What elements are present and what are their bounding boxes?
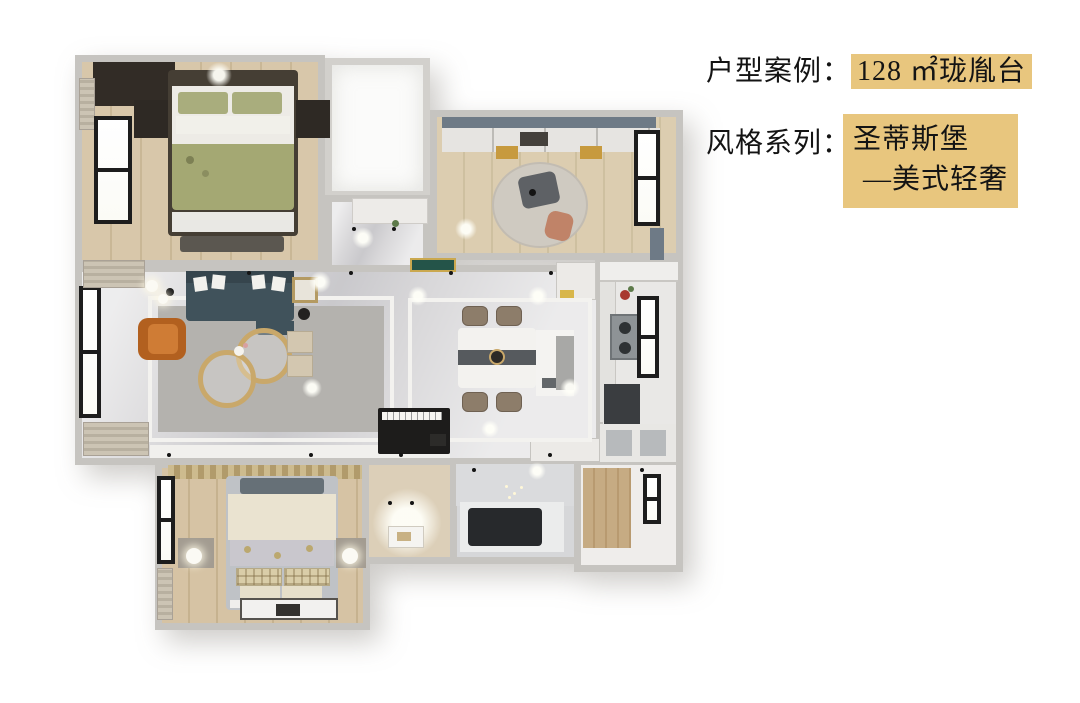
sofa-pillow bbox=[271, 276, 286, 292]
piano-keys bbox=[382, 412, 442, 420]
kitchen-cabinets bbox=[600, 262, 678, 282]
spotlight bbox=[392, 227, 396, 231]
floorplan-poster: 户型案例：128 ㎡珑胤台 风格系列： 圣蒂斯堡 —美式轻奢 bbox=[0, 0, 1080, 703]
bed-foot bbox=[172, 212, 294, 232]
pillow bbox=[178, 92, 228, 114]
curtain bbox=[650, 228, 664, 260]
case-row: 户型案例：128 ㎡珑胤台 bbox=[706, 49, 1032, 89]
ceiling-light bbox=[528, 286, 548, 306]
wood-panel-wall bbox=[583, 468, 631, 548]
vase bbox=[234, 346, 244, 356]
spotlight bbox=[247, 271, 251, 275]
cabinet bbox=[157, 568, 173, 620]
burner bbox=[619, 322, 631, 334]
window bbox=[79, 286, 101, 418]
sphere-lamp bbox=[158, 294, 168, 304]
decor-branch bbox=[186, 156, 194, 164]
ceiling-light bbox=[206, 62, 232, 88]
dining-chair bbox=[496, 306, 522, 326]
sofa-pillow bbox=[211, 274, 225, 289]
cabinet-door bbox=[640, 430, 666, 456]
sparkle bbox=[513, 492, 516, 495]
style-label: 风格系列： bbox=[706, 121, 851, 161]
bed-panel bbox=[230, 540, 334, 566]
spotlight bbox=[167, 453, 171, 457]
ceiling-light bbox=[309, 271, 331, 293]
dining-chair bbox=[462, 392, 488, 412]
dining-table bbox=[458, 328, 536, 388]
plant bbox=[392, 220, 399, 227]
side-table bbox=[298, 308, 310, 320]
upright-piano bbox=[378, 408, 450, 454]
sphere-lamp bbox=[146, 280, 158, 292]
sparkle bbox=[505, 485, 508, 488]
spotlight bbox=[388, 501, 392, 505]
spotlight bbox=[548, 453, 552, 457]
cream-duvet bbox=[228, 494, 336, 540]
style-series-subtitle: —美式轻奢 bbox=[853, 160, 1008, 200]
spotlight bbox=[410, 501, 414, 505]
plaid-pillow bbox=[236, 568, 282, 586]
sofa-pillow bbox=[193, 276, 208, 292]
low-cabinet bbox=[83, 422, 149, 456]
curtain bbox=[442, 117, 656, 128]
green-blanket bbox=[172, 144, 294, 210]
ceiling-light bbox=[302, 378, 322, 398]
master-bed bbox=[168, 70, 298, 236]
spotlight bbox=[449, 271, 453, 275]
cooktop bbox=[610, 314, 640, 360]
leather-armchair bbox=[138, 318, 186, 360]
rug-pattern bbox=[276, 604, 300, 616]
table-lamp bbox=[342, 548, 358, 564]
wall-unit bbox=[520, 132, 548, 146]
console-artwork bbox=[410, 258, 456, 272]
window bbox=[637, 296, 659, 378]
decor-dot bbox=[274, 552, 281, 559]
window bbox=[643, 474, 661, 524]
entry-cabinet bbox=[352, 198, 428, 224]
spotlight bbox=[349, 271, 353, 275]
spotlight bbox=[399, 453, 403, 457]
shelf-cabinet bbox=[79, 78, 95, 130]
bed-bench bbox=[240, 478, 324, 494]
lower-cabinets bbox=[600, 424, 676, 462]
cabinet-door bbox=[606, 430, 632, 456]
bathtub bbox=[468, 508, 542, 546]
spotlight bbox=[472, 468, 476, 472]
ottoman bbox=[287, 331, 313, 353]
dining-chair bbox=[496, 392, 522, 412]
centerpiece bbox=[489, 349, 505, 365]
style-value-highlight: 圣蒂斯堡 —美式轻奢 bbox=[843, 114, 1018, 208]
window bbox=[157, 476, 175, 564]
case-value-highlight: 128 ㎡珑胤台 bbox=[851, 54, 1032, 89]
gold-detail bbox=[560, 290, 574, 298]
gold-storage-box bbox=[496, 146, 518, 159]
decor-dot bbox=[244, 546, 251, 553]
apartment-floorplan-render bbox=[0, 0, 1080, 703]
wardrobe-row bbox=[442, 128, 660, 152]
guest-bed bbox=[226, 476, 338, 610]
spotlight bbox=[640, 468, 644, 472]
flowers bbox=[243, 343, 248, 348]
spotlight bbox=[352, 227, 356, 231]
nightstand bbox=[296, 100, 330, 138]
sofa bbox=[186, 271, 294, 321]
ottoman bbox=[287, 355, 313, 377]
plaid-pillow bbox=[284, 568, 330, 586]
bedside-rug bbox=[240, 598, 338, 620]
dining-chair bbox=[462, 306, 488, 326]
case-label: 户型案例： bbox=[706, 56, 851, 87]
lace-runner bbox=[176, 116, 290, 134]
coffee-table-ring bbox=[198, 350, 256, 408]
floor-lamp bbox=[166, 288, 174, 296]
ceiling-light bbox=[408, 286, 428, 306]
spotlight bbox=[549, 271, 553, 275]
ceiling-light bbox=[481, 420, 499, 438]
window bbox=[94, 116, 132, 224]
pillow bbox=[232, 92, 282, 114]
pendant-lamp bbox=[529, 189, 536, 196]
sparkle bbox=[520, 486, 523, 489]
burner bbox=[619, 342, 631, 354]
ceiling-light bbox=[455, 218, 477, 240]
bed-bench bbox=[180, 236, 284, 252]
refrigerator bbox=[604, 384, 640, 424]
decor-branch bbox=[202, 170, 209, 177]
ceiling-light bbox=[560, 378, 580, 398]
nightstand bbox=[134, 100, 168, 138]
window bbox=[634, 130, 660, 226]
ceiling-light bbox=[528, 462, 546, 480]
book bbox=[397, 532, 411, 541]
sofa-pillow bbox=[251, 274, 265, 289]
gold-storage-box bbox=[580, 146, 602, 159]
cabinet bbox=[83, 260, 145, 288]
style-series-name: 圣蒂斯堡 bbox=[853, 120, 1008, 160]
low-table bbox=[388, 526, 424, 548]
decor-dot bbox=[306, 545, 313, 552]
spotlight bbox=[309, 453, 313, 457]
table-lamp bbox=[186, 548, 202, 564]
sparkle bbox=[508, 496, 511, 499]
island-sink bbox=[542, 378, 556, 388]
armchair-cushion bbox=[148, 324, 178, 354]
piano-bench bbox=[430, 434, 446, 446]
plant-leaf bbox=[628, 286, 634, 292]
bathroom-top bbox=[325, 58, 430, 198]
